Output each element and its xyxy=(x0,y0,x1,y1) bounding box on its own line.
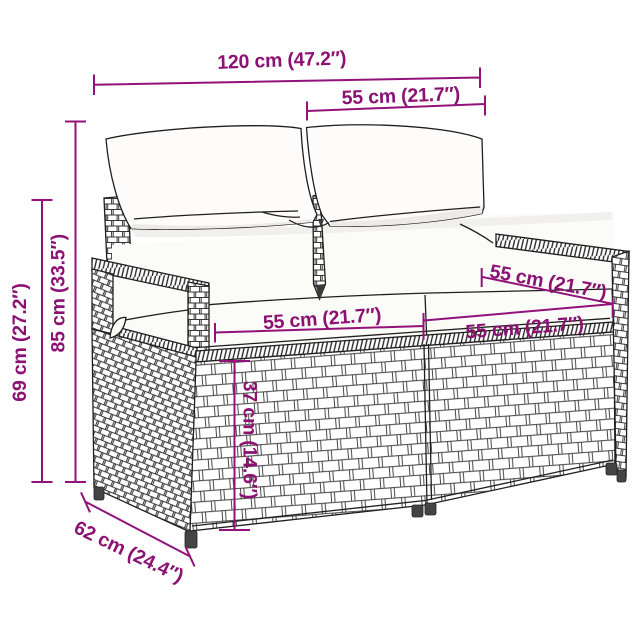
svg-text:120 cm (47.2″): 120 cm (47.2″) xyxy=(217,47,347,73)
svg-text:69 cm (27.2″): 69 cm (27.2″) xyxy=(9,283,31,401)
svg-text:55 cm (21.7″): 55 cm (21.7″) xyxy=(341,83,460,109)
svg-text:37 cm (14.6″): 37 cm (14.6″) xyxy=(239,381,261,499)
svg-text:85 cm (33.5″): 85 cm (33.5″) xyxy=(48,234,70,352)
